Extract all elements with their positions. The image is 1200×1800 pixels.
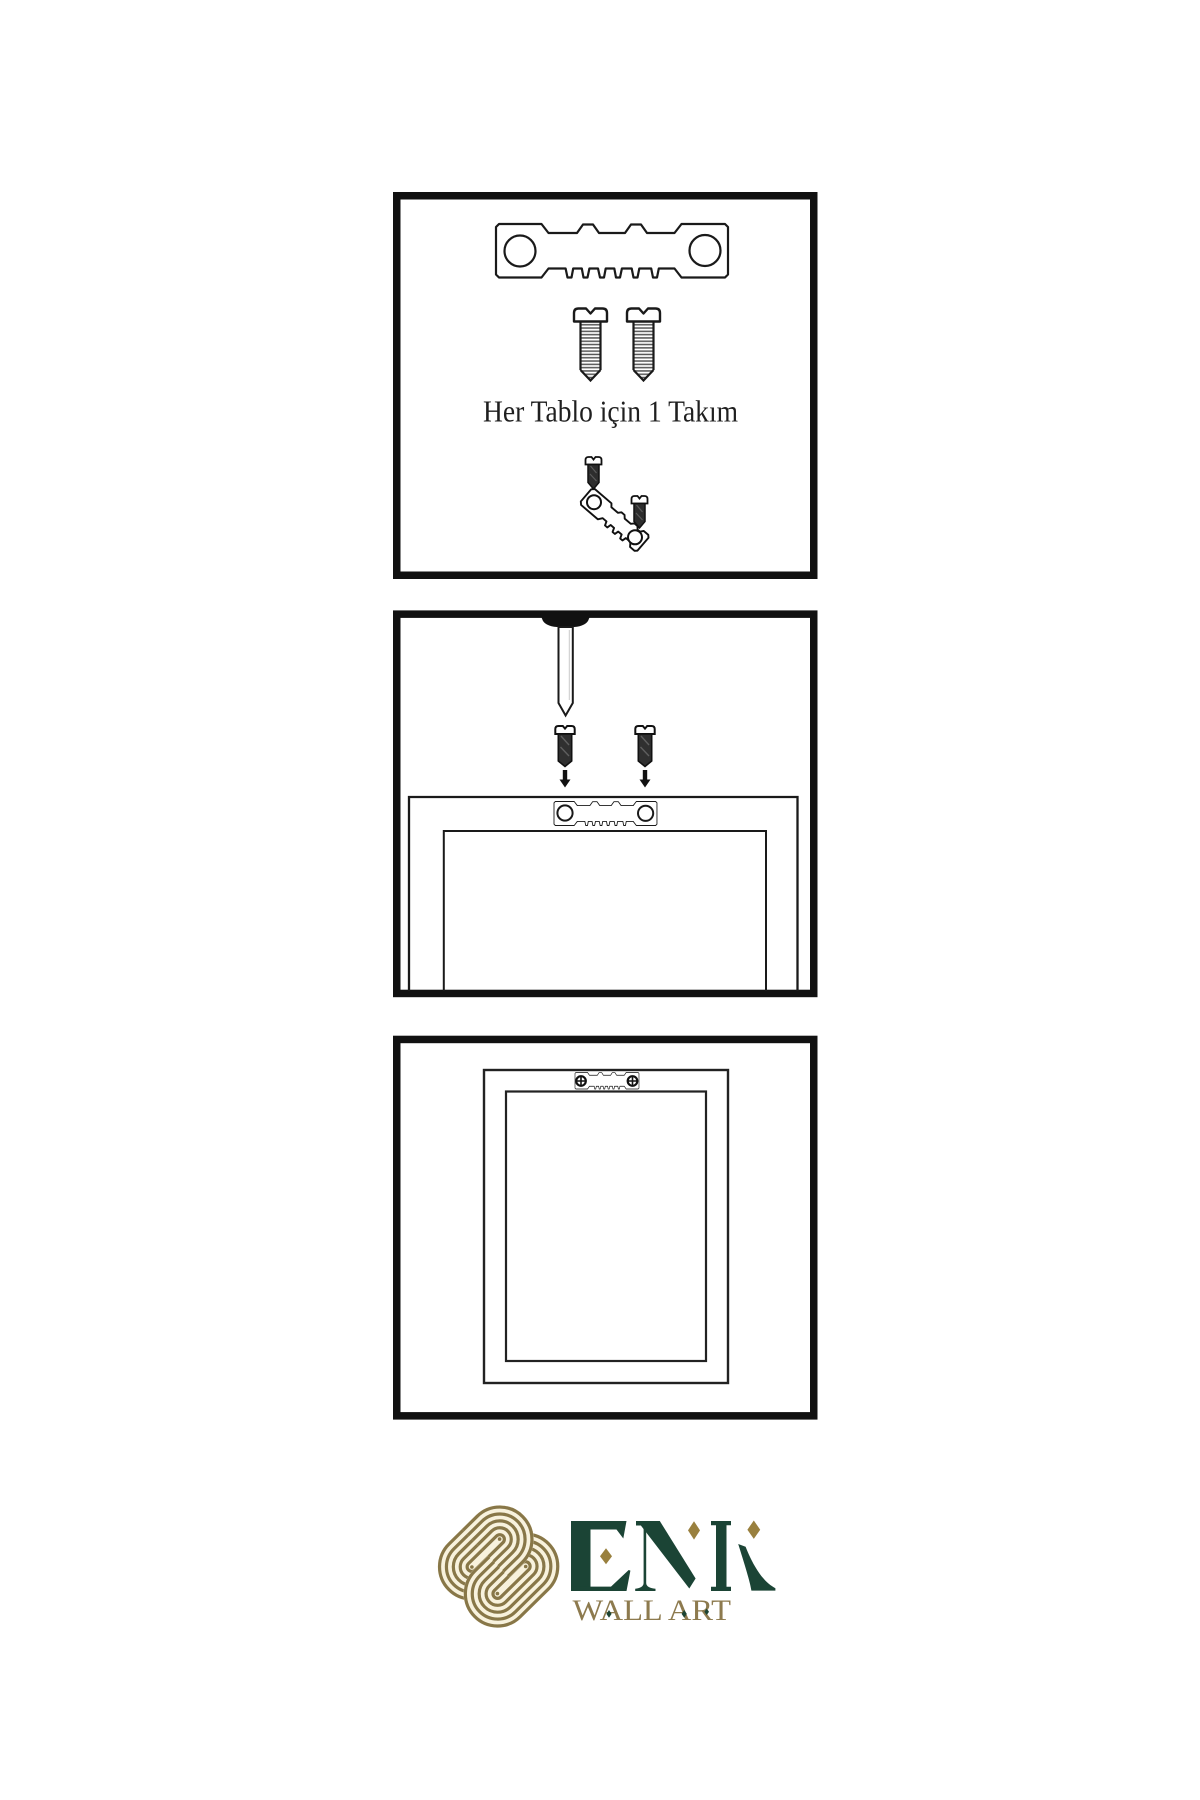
- svg-text:Her Tablo için 1 Takım: Her Tablo için 1 Takım: [483, 394, 738, 429]
